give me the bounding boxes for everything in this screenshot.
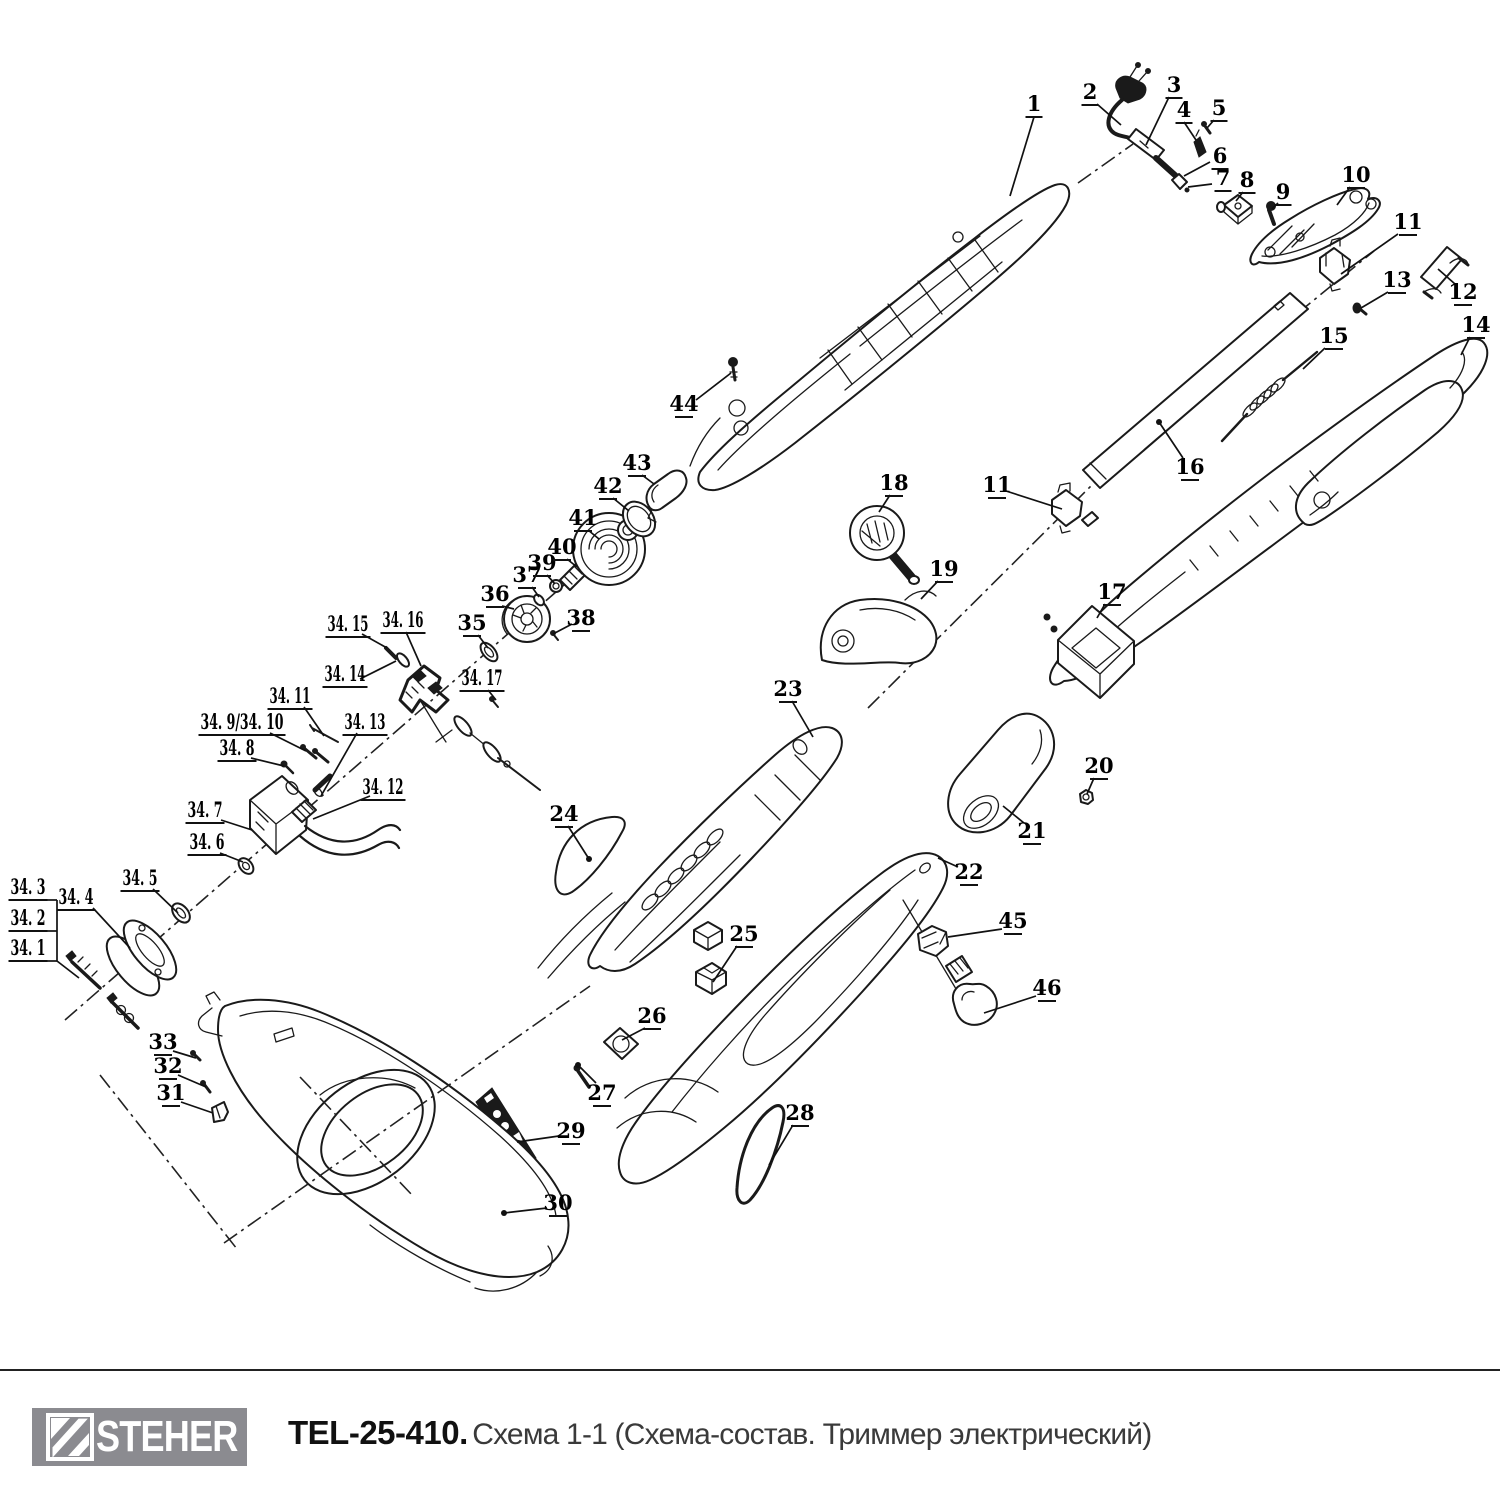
svg-text:38: 38 xyxy=(566,605,595,630)
exploded-diagram: 1234567891011121314151617181920212223242… xyxy=(0,0,1500,1500)
svg-text:22: 22 xyxy=(954,859,983,884)
part-label-33: 33 xyxy=(148,1029,196,1058)
part-label-23: 23 xyxy=(773,676,813,737)
svg-text:9: 9 xyxy=(1276,179,1291,204)
svg-text:17: 17 xyxy=(1097,579,1126,604)
svg-text:12: 12 xyxy=(1448,279,1477,304)
part-label-18: 18 xyxy=(879,470,909,512)
svg-text:13: 13 xyxy=(1382,267,1411,292)
part-label-34.15: 34. 15 xyxy=(326,611,388,648)
svg-text:27: 27 xyxy=(587,1080,616,1105)
part-label-20: 20 xyxy=(1084,753,1113,794)
svg-text:34. 2: 34. 2 xyxy=(11,905,46,930)
svg-text:34. 11: 34. 11 xyxy=(270,683,311,708)
part-label-19: 19 xyxy=(921,556,959,599)
svg-text:29: 29 xyxy=(556,1118,585,1143)
part-label-16: 16 xyxy=(1156,419,1205,480)
part-label-21: 21 xyxy=(1003,806,1047,844)
page-title: TEL-25-410. Схема 1-1 (Схема-состав. Три… xyxy=(288,1414,1468,1452)
part-label-2: 2 xyxy=(1082,79,1122,125)
part-label-5: 5 xyxy=(1207,95,1228,128)
part-30-guard xyxy=(199,992,569,1291)
svg-text:31: 31 xyxy=(156,1080,185,1105)
svg-text:34. 15: 34. 15 xyxy=(328,611,369,636)
model-number: TEL-25-410. xyxy=(288,1414,468,1451)
svg-text:35: 35 xyxy=(457,610,486,635)
part-25-clips xyxy=(694,922,726,994)
svg-text:11: 11 xyxy=(982,472,1011,497)
svg-text:15: 15 xyxy=(1319,323,1348,348)
part-label-34.5: 34. 5 xyxy=(121,865,179,913)
svg-text:28: 28 xyxy=(785,1100,814,1125)
svg-text:18: 18 xyxy=(879,470,908,495)
part-label-12: 12 xyxy=(1438,269,1478,305)
part-label-38: 38 xyxy=(553,605,596,634)
svg-text:40: 40 xyxy=(547,534,576,559)
part-1-upper-housing xyxy=(690,184,1069,490)
brand-name: STEHER xyxy=(96,1412,237,1462)
svg-text:36: 36 xyxy=(480,581,509,606)
part-label-8: 8 xyxy=(1236,167,1256,201)
part-label-42: 42 xyxy=(593,473,629,511)
svg-text:42: 42 xyxy=(593,473,622,498)
part-label-35: 35 xyxy=(457,610,488,648)
part-20-nut xyxy=(1080,790,1093,804)
part-13-screw xyxy=(1353,303,1366,314)
part-label-9: 9 xyxy=(1272,179,1292,209)
part-label-34.7: 34. 7 xyxy=(186,797,253,830)
part-28-sticker xyxy=(737,1106,784,1204)
part-44-screw xyxy=(729,358,738,381)
part-9-screw xyxy=(1267,202,1276,225)
part-label-24: 24 xyxy=(549,801,592,862)
part-label-34.8: 34. 8 xyxy=(218,735,285,766)
part-label-36: 36 xyxy=(480,581,514,609)
svg-text:14: 14 xyxy=(1461,312,1490,337)
part-label-13: 13 xyxy=(1361,267,1412,308)
part-35-43-trimmer-head xyxy=(477,471,686,665)
part-10-handle-shell xyxy=(1250,188,1379,264)
svg-text:45: 45 xyxy=(998,908,1027,933)
svg-text:10: 10 xyxy=(1341,162,1370,187)
svg-text:32: 32 xyxy=(153,1053,182,1078)
svg-text:4: 4 xyxy=(1177,97,1192,122)
svg-text:24: 24 xyxy=(549,801,578,826)
svg-text:34. 6: 34. 6 xyxy=(190,829,225,854)
part-label-34.14: 34. 14 xyxy=(323,661,397,687)
svg-text:5: 5 xyxy=(1212,95,1227,120)
part-label-43: 43 xyxy=(622,450,654,484)
svg-text:34. 13: 34. 13 xyxy=(345,709,386,734)
svg-text:34. 1: 34. 1 xyxy=(11,935,46,960)
brand-logo: STEHER xyxy=(32,1408,247,1466)
part-label-45: 45 xyxy=(948,908,1028,937)
svg-text:34. 14: 34. 14 xyxy=(325,661,366,686)
page: 1234567891011121314151617181920212223242… xyxy=(0,0,1500,1500)
footer-divider xyxy=(0,1369,1500,1371)
svg-text:34. 16: 34. 16 xyxy=(383,607,424,632)
part-8-switch xyxy=(1217,195,1252,224)
svg-text:34. 9/34. 10: 34. 9/34. 10 xyxy=(201,709,284,734)
svg-text:34. 5: 34. 5 xyxy=(123,865,158,890)
svg-text:33: 33 xyxy=(148,1029,177,1054)
part-label-11: 11 xyxy=(982,472,1062,509)
part-label-34.3: 34. 3 xyxy=(9,874,58,900)
part-label-1: 1 xyxy=(1010,91,1043,196)
part-label-34.17: 34. 17 xyxy=(460,665,505,700)
svg-text:34. 4: 34. 4 xyxy=(59,884,94,909)
svg-text:1: 1 xyxy=(1027,91,1042,116)
footer: STEHER TEL-25-410. Схема 1-1 (Схема-сост… xyxy=(0,1400,1500,1480)
svg-text:20: 20 xyxy=(1084,753,1113,778)
part-23-motor-housing xyxy=(538,727,842,978)
part-19-clamp xyxy=(821,591,937,664)
svg-text:34. 12: 34. 12 xyxy=(363,774,404,799)
svg-text:43: 43 xyxy=(622,450,651,475)
part-label-34.6: 34. 6 xyxy=(188,829,244,862)
part-21-clamp-bracket xyxy=(948,714,1054,835)
svg-text:44: 44 xyxy=(669,391,698,416)
part-label-7: 7 xyxy=(1188,165,1232,191)
schema-subtitle: Схема 1-1 (Схема-состав. Триммер электри… xyxy=(472,1418,1151,1451)
svg-text:19: 19 xyxy=(929,556,958,581)
svg-text:46: 46 xyxy=(1032,975,1061,1000)
part-label-34.1: 34. 1 xyxy=(9,935,58,961)
svg-text:2: 2 xyxy=(1083,79,1098,104)
svg-text:11: 11 xyxy=(1393,209,1422,234)
part-label-15: 15 xyxy=(1303,323,1349,369)
svg-text:25: 25 xyxy=(729,921,758,946)
part-label-34.2: 34. 2 xyxy=(9,905,58,931)
svg-text:34. 7: 34. 7 xyxy=(188,797,223,822)
part-18-knob xyxy=(850,506,919,584)
svg-text:34. 17: 34. 17 xyxy=(462,665,503,690)
svg-text:16: 16 xyxy=(1175,454,1204,479)
svg-text:8: 8 xyxy=(1240,167,1255,192)
svg-text:26: 26 xyxy=(637,1003,666,1028)
svg-text:7: 7 xyxy=(1216,165,1231,190)
part-label-4: 4 xyxy=(1176,97,1197,140)
svg-text:21: 21 xyxy=(1017,818,1046,843)
svg-text:34. 3: 34. 3 xyxy=(11,874,46,899)
part-label-44: 44 xyxy=(669,373,731,417)
svg-text:30: 30 xyxy=(543,1190,572,1215)
part-label-28: 28 xyxy=(769,1100,815,1165)
svg-text:23: 23 xyxy=(773,676,802,701)
part-24-sticker xyxy=(555,817,624,894)
svg-text:34. 8: 34. 8 xyxy=(220,735,255,760)
svg-text:41: 41 xyxy=(568,505,597,530)
part-label-29: 29 xyxy=(517,1118,586,1144)
part-label-27: 27 xyxy=(575,1062,617,1106)
steher-logo-icon xyxy=(46,1413,96,1461)
part-26-square-nut xyxy=(604,1028,638,1059)
svg-text:3: 3 xyxy=(1167,72,1182,97)
